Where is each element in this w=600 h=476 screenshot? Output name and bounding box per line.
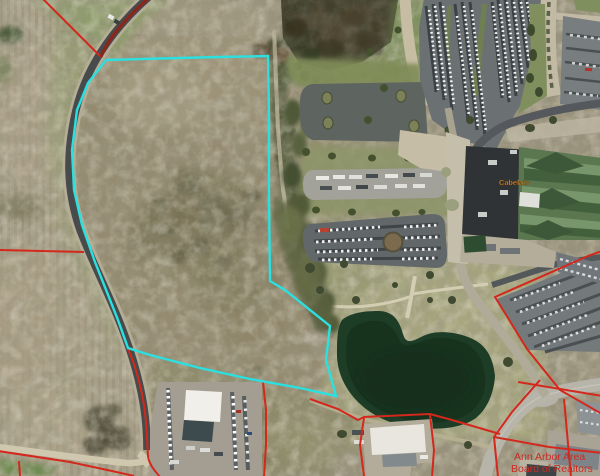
svg-text:Cabela's: Cabela's (499, 178, 529, 187)
svg-text:Ann Arbor Area: Ann Arbor Area (514, 451, 585, 463)
svg-text:Board of Realtors: Board of Realtors (511, 463, 593, 475)
